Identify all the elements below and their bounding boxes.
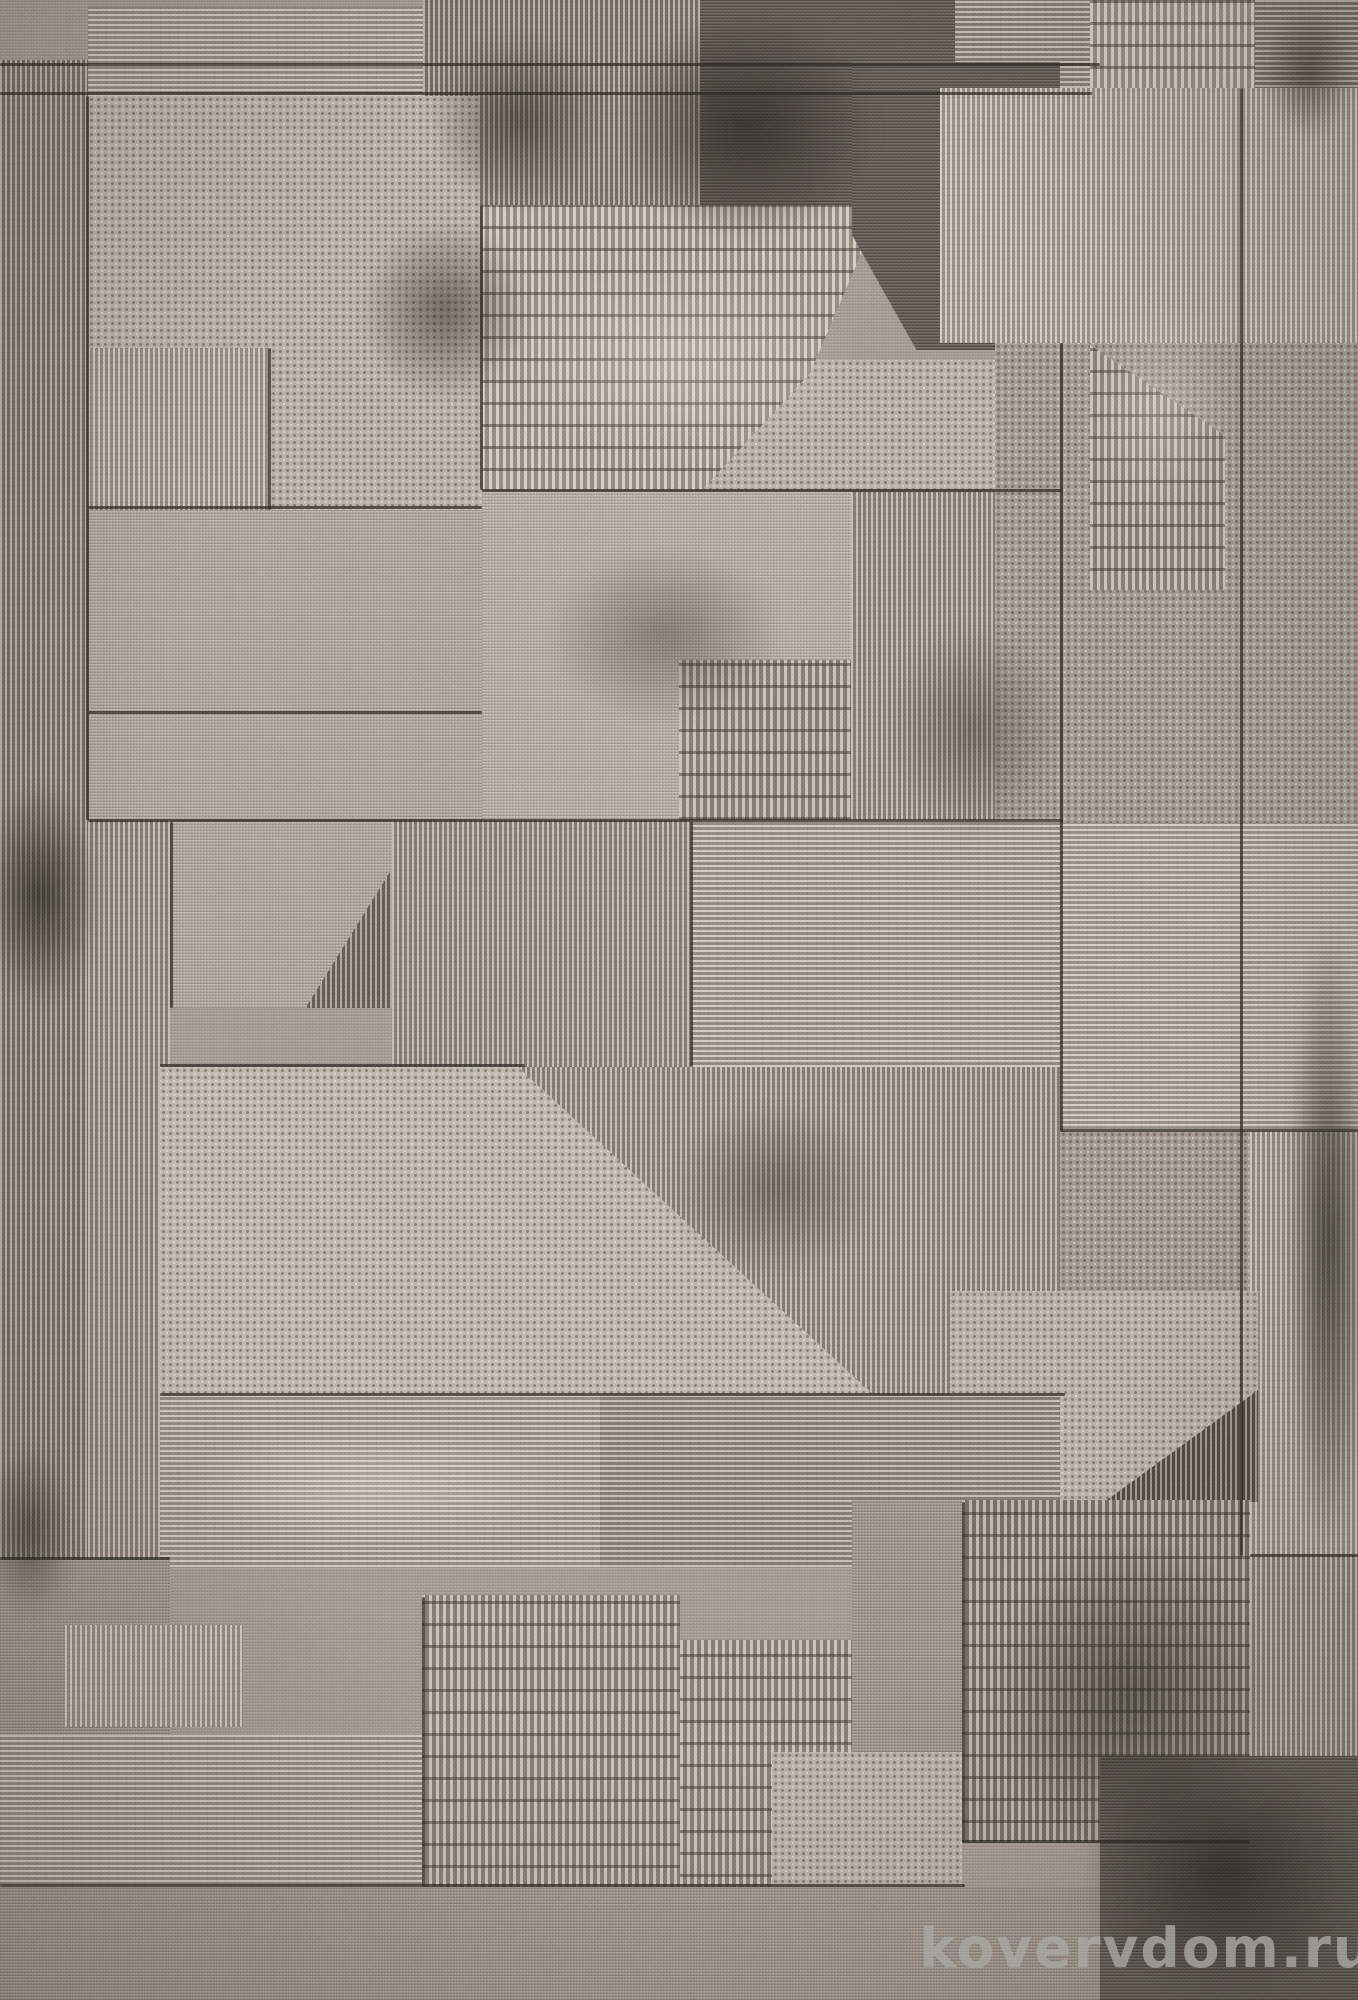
rug-seam-line [482,489,1062,492]
rug-patch-vrib [88,348,270,510]
rug-patch-vrib [392,820,690,1067]
rug-patch-hline [690,820,1060,1067]
rug-patch-vrib [1240,88,1358,343]
rug-patch-diamond [1060,1131,1250,1291]
rug-seam-line [160,1064,525,1067]
rug-seam-line [1250,1554,1358,1557]
rug-seam-line [962,1840,1250,1843]
rug-patch-diamond [1240,343,1358,823]
rug-seam-line [160,1393,1065,1396]
rug-seam-line [422,1597,425,1887]
rug-patch-vrib [940,88,1240,343]
rug-seam-line [88,506,482,509]
rug-patch-dash [422,1595,680,1887]
rug-seam-line [0,1884,965,1887]
rug-seam-line [170,822,173,1008]
rug-patch-vrib [851,492,995,822]
rug-patch-diamond [270,348,482,510]
rug-patch-hline [160,1395,600,1567]
rug-seam-line [86,96,89,820]
rug-seam-line [88,711,482,714]
rug-patch-hline [1060,823,1358,1131]
rug-seam-line [88,819,1063,822]
rug-patch-hline [88,6,423,96]
rug-patch-hline [0,1735,422,1887]
rug-patch-vrib [1250,1556,1358,1756]
rug-seam-line [0,1557,170,1560]
rug-patch-mesh [88,510,482,820]
rug-seam-line [690,822,693,1067]
rug-seam-line [0,63,1100,66]
rug-seam-line [480,205,483,490]
rug-seam-line [268,348,271,510]
rug-seam-line [1240,88,1243,1556]
rug-seam-line [1060,1129,1358,1132]
rug-seam-line [962,1502,965,1842]
rug-seam-line [0,92,1092,95]
rug-patch-dash [1090,0,1255,88]
rug-patch-vrib [88,820,170,1565]
rug-patch-vrib [65,1625,243,1727]
rug-photo: kovervdom.ru [0,0,1358,2000]
rug-seam-line [1060,343,1063,1131]
rug-patch-vrib [1250,1131,1358,1556]
rug-patch-diamond [88,96,480,348]
watermark-text: kovervdom.ru [919,1916,1358,1980]
